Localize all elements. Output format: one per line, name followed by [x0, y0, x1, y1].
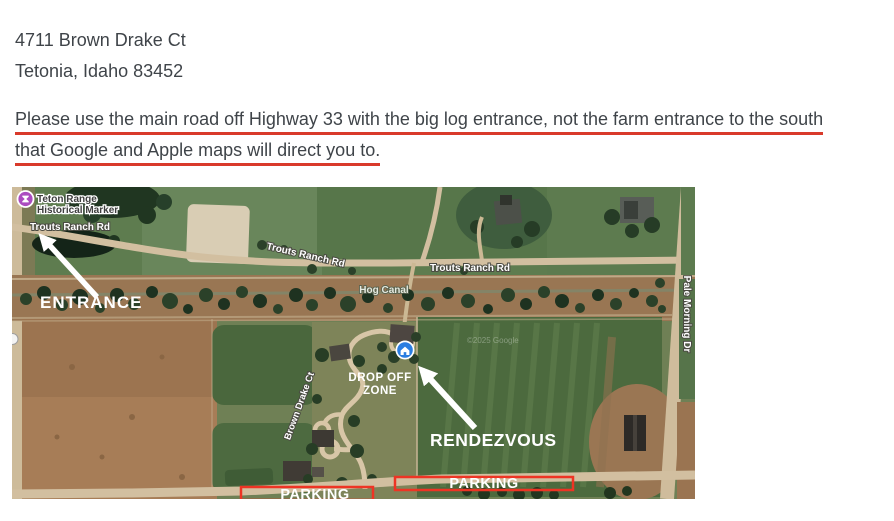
address-block: 4711 Brown Drake Ct Tetonia, Idaho 83452	[15, 25, 186, 87]
clipped-map-pin	[12, 334, 18, 345]
annotation-dropoff-line2: ZONE	[363, 385, 397, 397]
annotation-rendezvous: RENDEZVOUS	[430, 430, 557, 450]
map-satellite-image: Trouts Ranch Rd Trouts Ranch Rd Trouts R…	[12, 187, 695, 499]
road-label-trouts-ranch-rd-west: Trouts Ranch Rd	[30, 222, 110, 233]
road-label-pale-morning-dr: Pale Morning Dr	[681, 276, 692, 353]
annotation-entrance: ENTRANCE	[40, 293, 142, 312]
notice-line1: Please use the main road off Highway 33 …	[15, 109, 823, 135]
page: { "header": { "address_line1": "4711 Bro…	[0, 0, 894, 521]
map-svg: Trouts Ranch Rd Trouts Ranch Rd Trouts R…	[12, 187, 695, 499]
annotation-dropoff-line1: DROP OFF	[348, 372, 411, 384]
google-watermark: ©2025 Google	[467, 336, 519, 345]
address-line1: 4711 Brown Drake Ct	[15, 25, 186, 56]
notice-line2: that Google and Apple maps will direct y…	[15, 140, 380, 166]
address-line2: Tetonia, Idaho 83452	[15, 56, 186, 87]
poi-label-line2: Historical Marker	[37, 205, 118, 216]
waterway-label-hog-canal: Hog Canal	[359, 285, 409, 296]
home-marker	[396, 341, 415, 360]
poi-label-line1: Teton Range	[37, 194, 97, 205]
annotation-parking-west: PARKING	[280, 487, 349, 499]
road-label-trouts-ranch-rd-east: Trouts Ranch Rd	[430, 263, 510, 274]
annotation-parking-east: PARKING	[449, 476, 518, 492]
directions-notice: Please use the main road off Highway 33 …	[15, 109, 823, 171]
